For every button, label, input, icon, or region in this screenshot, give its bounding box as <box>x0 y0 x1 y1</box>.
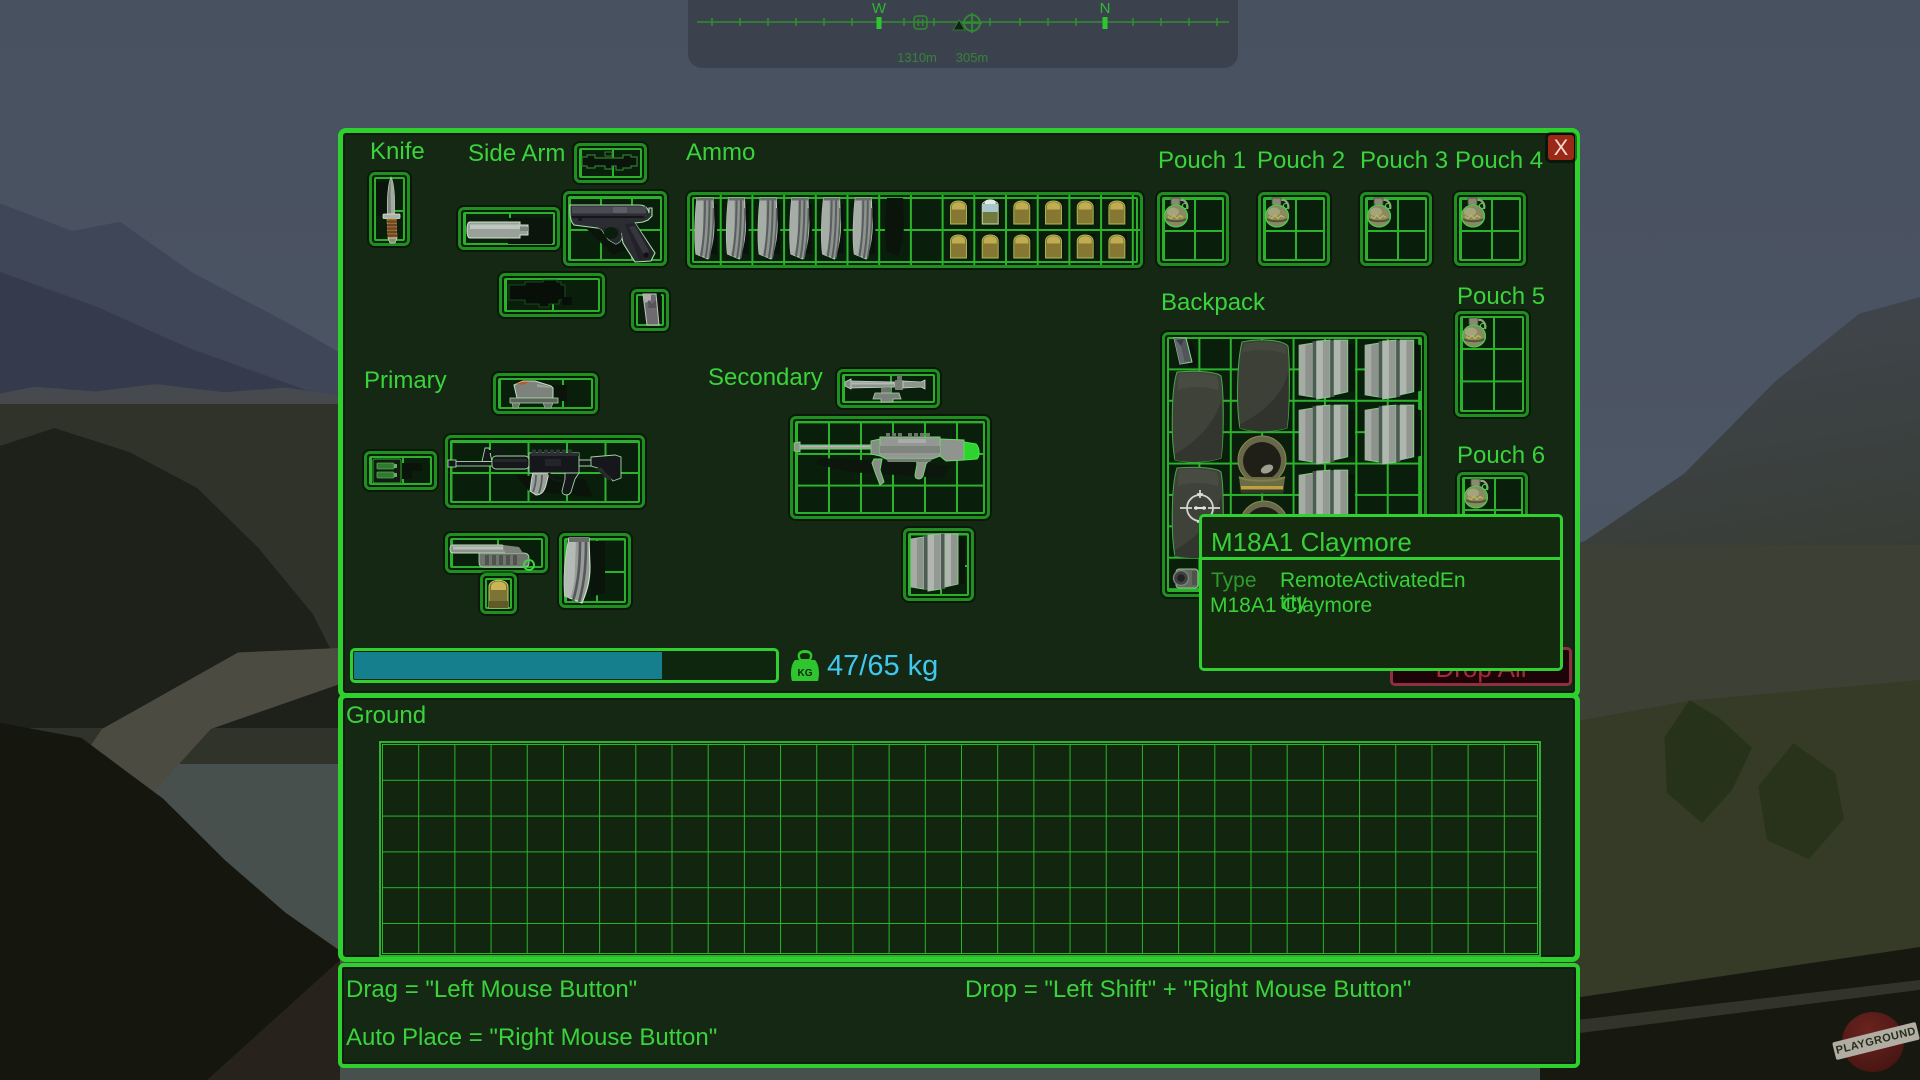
svg-text:N: N <box>1100 0 1111 17</box>
svg-text:H: H <box>917 18 924 29</box>
svg-text:W: W <box>872 0 887 17</box>
svg-text:1310m: 1310m <box>897 50 937 65</box>
svg-text:KG: KG <box>798 668 813 679</box>
svg-text:305m: 305m <box>956 50 989 65</box>
